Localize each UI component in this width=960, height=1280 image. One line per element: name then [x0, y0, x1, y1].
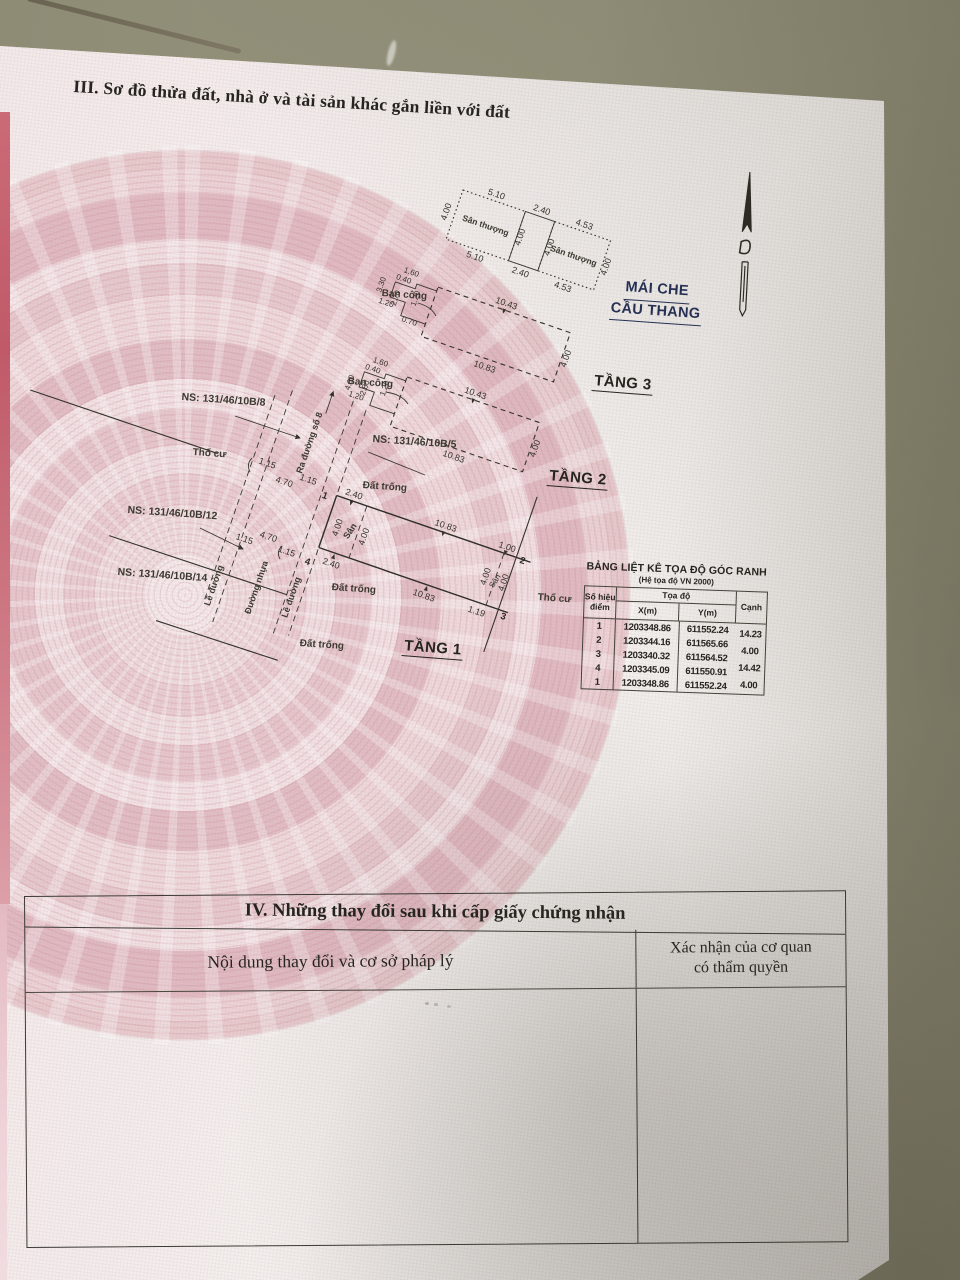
to-street-8-label: Ra đường số 8 — [294, 411, 324, 475]
section4-title: IV. Những thay đổi sau khi cấp giấy chứn… — [25, 891, 845, 935]
edge-length: 4.00 — [735, 646, 765, 658]
point-id: 2 — [583, 632, 615, 647]
section4-col-confirm-header: Xác nhận của cơ quan có thẩm quyền — [635, 928, 845, 987]
dim-road-u: 4.70 — [274, 474, 294, 489]
dim-curb-l2: 1.15 — [277, 544, 297, 559]
asphalt-road-label: Đường nhựa — [243, 559, 271, 616]
stair-roof-title: MÁI CHE CẦU THANG — [609, 277, 703, 326]
dim-site-top-len: 10.83 — [433, 517, 458, 534]
y-value: 611552.24 — [677, 678, 733, 694]
coordinate-table: BẢNG LIỆT KÊ TỌA ĐỘ GÓC RANH (Hệ tọa độ … — [572, 560, 776, 696]
point-id: 1 — [583, 618, 615, 633]
section4-confirm-cell — [636, 987, 848, 1242]
point-id: 3 — [583, 646, 615, 661]
rotated-plan-group: 5.10 5.10 4.00 Sân thượng 2.40 2.40 4.00… — [0, 67, 642, 730]
dim-site-bottom-len: 10.83 — [412, 587, 437, 604]
photo-of-land-certificate: { "document": { "section3_title": "III. … — [0, 0, 960, 1280]
section4-table: IV. Những thay đổi sau khi cấp giấy chứn… — [24, 890, 848, 1248]
dim-terrace-b-bottom: 4.53 — [553, 279, 573, 294]
dim-f3-top: 10.43 — [494, 295, 519, 312]
point-1-label: 1 — [320, 490, 329, 502]
dim-terrace-b-right: 4.00 — [598, 257, 613, 277]
point-3-label: 3 — [499, 611, 508, 623]
dim-f3-b7: 0.70 — [401, 314, 419, 328]
floor2-plan: 10.43 10.83 4.00 1.60 0.40 1.20 2.80 4.0… — [332, 347, 552, 487]
dim-road-l: 4.70 — [259, 529, 279, 544]
dim-terrace-m-left: 4.00 — [512, 227, 527, 247]
confirm-header-line2: có thẩm quyền — [694, 958, 788, 979]
point-id: 4 — [582, 660, 614, 675]
confirm-header-line1: Xác nhận của cơ quan — [670, 938, 812, 959]
neighbour-boundaries — [0, 389, 335, 662]
curb-right-label: Lề đường — [279, 576, 302, 619]
dim-terrace-a-bottom: 5.10 — [465, 249, 485, 264]
terrace-b-label: Sân thượng — [549, 243, 598, 268]
col-header-edge: Cạnh — [736, 592, 767, 624]
terrace-plan: 5.10 5.10 4.00 Sân thượng 2.40 2.40 4.00… — [429, 174, 623, 304]
north-arrow-icon — [736, 172, 754, 316]
section4-content-cell — [26, 989, 638, 1247]
coordinate-table-grid: Số hiệu điểm Tọa độ X(m) Y(m) Cạnh 1 120… — [580, 585, 768, 695]
col-header-x: X(m) — [616, 601, 680, 621]
edge-length: 14.42 — [734, 663, 764, 675]
dim-site-right-bottom: 1.19 — [467, 604, 487, 619]
section4-col-content-header: Nội dung thay đổi và cơ sở pháp lý — [25, 930, 635, 992]
dim-terrace-a-top: 5.10 — [487, 187, 507, 202]
edge-length-column: 14.23 4.00 14.42 4.00 — [733, 624, 765, 695]
dim-terrace-a-left: 4.00 — [438, 202, 453, 222]
road: 1.15 4.70 1.15 1.15 4.70 1.15 Lề đường Đ… — [198, 374, 369, 647]
site-plan: 2.40 2.40 10.83 10.83 1.00 1.19 4.00 Sân… — [291, 431, 551, 657]
col-header-point: Số hiệu điểm — [584, 586, 617, 618]
residential-left-label: Thổ cư — [192, 447, 227, 460]
dim-f2-right: 4.00 — [527, 439, 542, 459]
dim-terrace-b-top: 4.53 — [574, 217, 594, 232]
dim-f3-right: 4.00 — [558, 349, 573, 369]
point-id: 1 — [582, 674, 614, 689]
dim-curb-u1: 1.15 — [257, 456, 277, 471]
dim-curb-l1: 1.15 — [235, 531, 255, 546]
col-header-y: Y(m) — [679, 604, 735, 624]
edge-length: 14.23 — [735, 629, 765, 641]
floor3-plan: 10.43 10.83 4.00 1.60 0.40 1.20 3.30 2.7… — [361, 257, 583, 398]
residential-right-label: Thổ cư — [537, 592, 572, 605]
dim-f2-top: 10.43 — [463, 385, 488, 402]
terrace-a-label: Sân thượng — [461, 213, 510, 238]
x-value: 1203348.86 — [614, 675, 678, 691]
faint-pen-marks — [425, 1002, 429, 1005]
point-4-label: 4 — [303, 556, 312, 568]
edge-length: 4.00 — [734, 680, 764, 692]
